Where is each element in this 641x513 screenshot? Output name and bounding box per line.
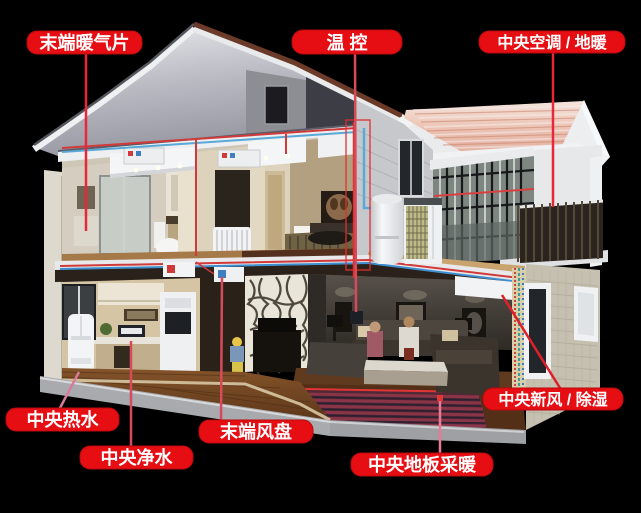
svg-text:温 控: 温 控 [326,32,367,53]
svg-text:中央空调 / 地暖: 中央空调 / 地暖 [497,33,607,52]
svg-text:中央地板采暖: 中央地板采暖 [368,454,477,475]
svg-text:末端风盘: 末端风盘 [220,421,292,442]
svg-text:中央新风 / 除湿: 中央新风 / 除湿 [498,390,607,409]
svg-text:末端暖气片: 末端暖气片 [40,32,130,53]
svg-text:中央净水: 中央净水 [101,447,174,468]
svg-text:中央热水: 中央热水 [27,409,100,430]
